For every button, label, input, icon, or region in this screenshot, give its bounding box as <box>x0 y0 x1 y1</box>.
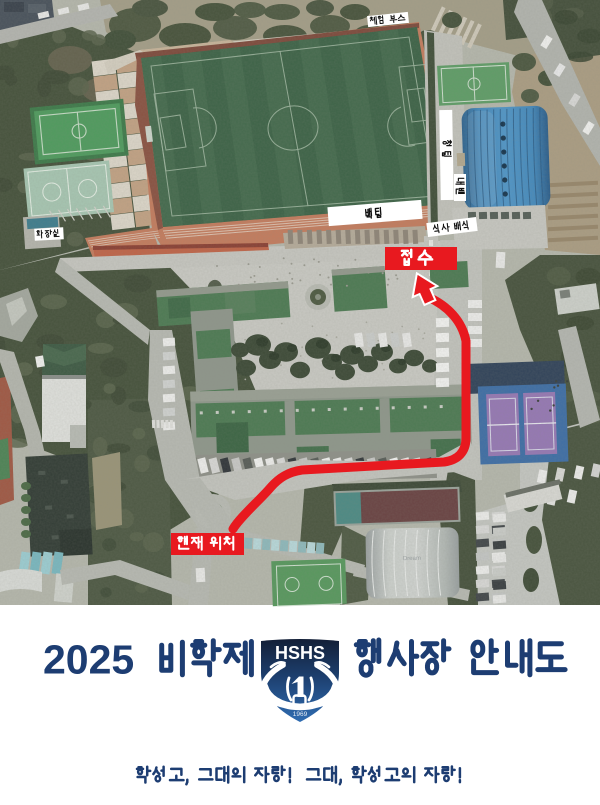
svg-text:1969: 1969 <box>293 711 308 718</box>
svg-text:2025: 2025 <box>43 637 134 683</box>
svg-text:HSHS: HSHS <box>275 643 325 663</box>
